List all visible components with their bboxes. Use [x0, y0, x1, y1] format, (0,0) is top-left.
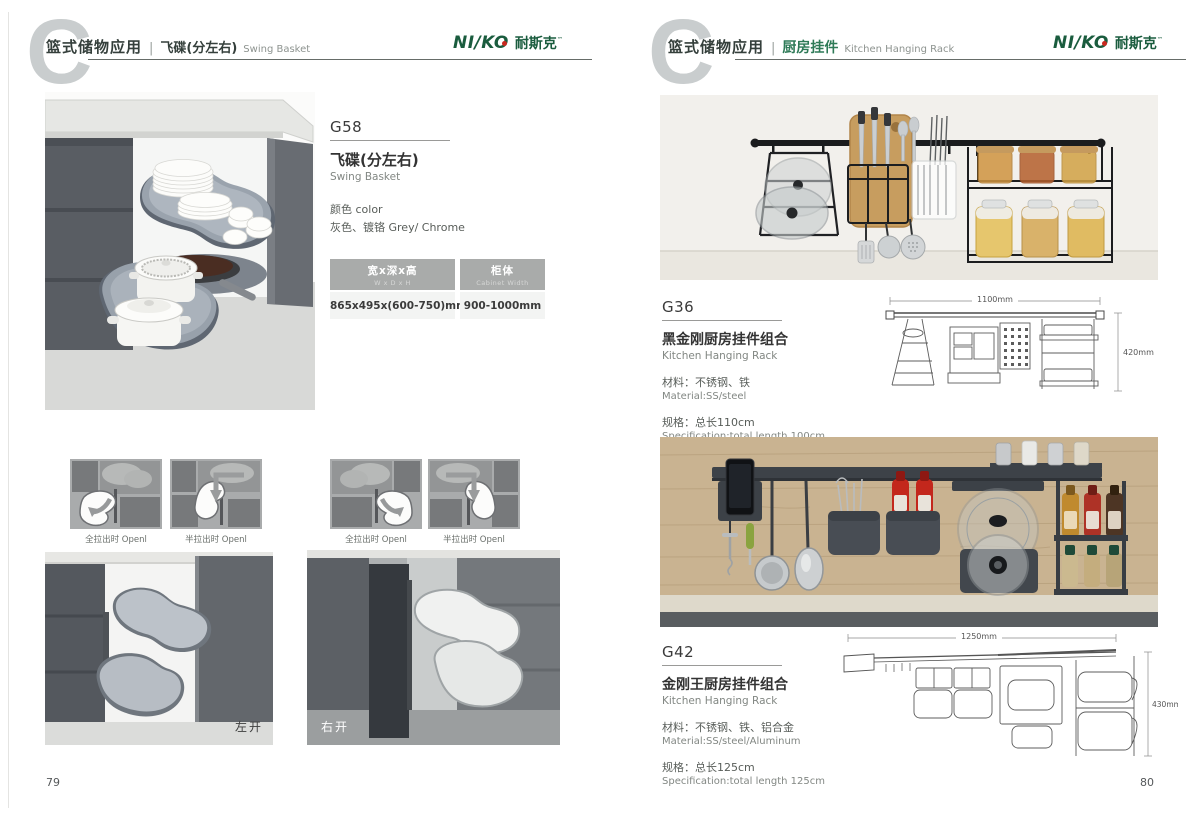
g36-hanging-rack-photo: [660, 95, 1158, 280]
product-code: G58: [330, 118, 560, 136]
nisko-logo-trademark: ™: [1157, 37, 1163, 44]
photo-left-open: 左开: [45, 552, 273, 745]
swing-basket-photo: [45, 92, 315, 410]
diagram-caption: 半拉出时 Openl: [428, 533, 520, 545]
page-edge-line: [8, 12, 9, 808]
g36-dimension-drawing: 1100mm: [882, 293, 1154, 403]
diagram-full-open-right: [330, 458, 422, 530]
nisko-logo-cn: 耐斯克: [515, 36, 557, 52]
nisko-logo-right: NI/KO耐斯克™: [1053, 33, 1163, 53]
diagram-full-open-left: [70, 458, 162, 530]
header-title-cn: 飞碟(分左右): [160, 41, 237, 56]
product-info-g58: G58 飞碟(分左右) Swing Basket 颜色 color 灰色、镀铬 …: [330, 118, 560, 319]
header-separator: |: [149, 41, 153, 56]
nisko-logo-latin: NI/KO: [453, 33, 509, 53]
header-title-en: Swing Basket: [243, 44, 310, 55]
color-label: 颜色 color: [330, 201, 560, 217]
g42-hanging-rack-photo: [660, 437, 1158, 627]
header-category: 篮式储物应用: [668, 38, 764, 56]
dim-width-label: 1250mm: [961, 632, 997, 641]
g42-dimension-drawing: 1250mm: [838, 628, 1178, 768]
catalog-spread: C 篮式储物应用|飞碟(分左右)Swing Basket NI/KO耐斯克™: [0, 0, 1200, 820]
nisko-logo-trademark: ™: [557, 37, 563, 44]
page-number-left: 79: [46, 776, 60, 789]
diagram-half-open-right: [428, 458, 520, 530]
spec-value-cabinet: 900-1000mm: [460, 292, 545, 319]
product-code-rule: [662, 665, 782, 666]
dim-height-label: 420mm: [1123, 348, 1154, 357]
diagram-caption: 全拉出时 Openl: [330, 533, 422, 545]
page-header-right: 篮式储物应用|厨房挂件Kitchen Hanging Rack: [668, 36, 954, 57]
photo-right-open: 右开: [307, 550, 560, 745]
color-value: 灰色、镀铬 Grey/ Chrome: [330, 219, 560, 235]
diagram-caption: 半拉出时 Openl: [170, 533, 262, 545]
product-name-cn: 飞碟(分左右): [330, 149, 560, 170]
product-spec-en: Specification:total length 125cm: [662, 776, 877, 787]
header-category: 篮式储物应用: [46, 38, 142, 56]
nisko-logo-latin: NI/KO: [1053, 33, 1109, 53]
dim-width-label: 1100mm: [977, 295, 1013, 304]
photo-caption-left-open: 左开: [235, 718, 263, 735]
product-name-en: Kitchen Hanging Rack: [662, 350, 877, 362]
nisko-logo-cn: 耐斯克: [1115, 36, 1157, 52]
spec-col-dimensions: 宽x深x高 W x D x H 865x495x(600-750)mm: [330, 259, 455, 319]
header-rule-right: [735, 59, 1186, 60]
product-code-rule: [662, 320, 782, 321]
product-name-cn: 黑金刚厨房挂件组合: [662, 329, 877, 349]
photo-left-open-illustration: [45, 552, 273, 745]
product-material-en: Material:SS/steel: [662, 391, 877, 402]
dim-height-label: 430mm: [1152, 700, 1178, 709]
header-rule-left: [88, 59, 592, 60]
header-title-cn: 厨房挂件: [782, 40, 838, 56]
spec-table: 宽x深x高 W x D x H 865x495x(600-750)mm 柜体 C…: [330, 259, 545, 319]
photo-right-open-illustration: [307, 550, 560, 745]
product-material-cn: 材料：不锈钢、铁: [662, 374, 877, 390]
spec-col-cabinet: 柜体 Cabinet Width 900-1000mm: [460, 259, 545, 319]
page-header-left: 篮式储物应用|飞碟(分左右)Swing Basket: [46, 36, 310, 57]
header-title-en: Kitchen Hanging Rack: [844, 44, 954, 55]
diagram-caption: 全拉出时 Openl: [70, 533, 162, 545]
spec-header-cabinet: 柜体 Cabinet Width: [460, 259, 545, 290]
spec-value-dimensions: 865x495x(600-750)mm: [330, 292, 455, 319]
product-spec-cn: 规格：总长110cm: [662, 414, 877, 430]
diagram-half-open-left: [170, 458, 262, 530]
product-code-rule: [330, 140, 450, 141]
photo-caption-right-open: 右开: [321, 718, 349, 735]
nisko-logo-left: NI/KO耐斯克™: [453, 33, 563, 53]
spec-header-dimensions: 宽x深x高 W x D x H: [330, 259, 455, 290]
product-name-en: Swing Basket: [330, 171, 560, 183]
product-info-g36: G36 黑金刚厨房挂件组合 Kitchen Hanging Rack 材料：不锈…: [662, 298, 877, 442]
page-number-right: 80: [1140, 776, 1154, 789]
header-separator: |: [771, 41, 775, 56]
product-code: G36: [662, 298, 877, 316]
